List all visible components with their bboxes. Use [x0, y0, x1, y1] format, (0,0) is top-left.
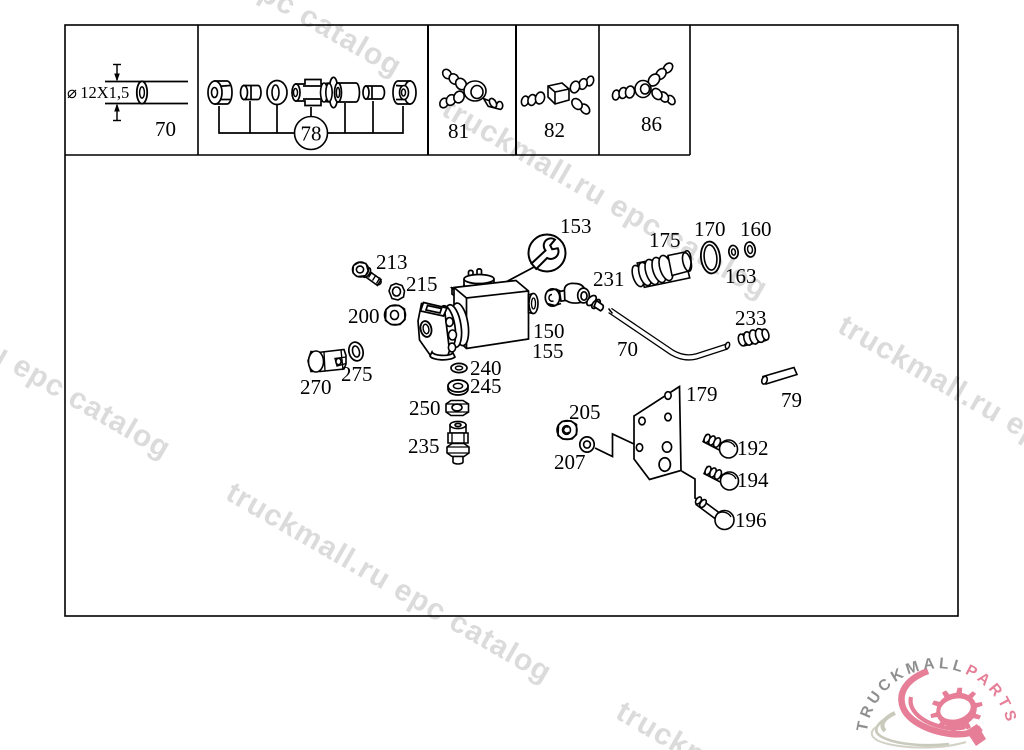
- svg-text:⌀ 12X1,5: ⌀ 12X1,5: [67, 83, 129, 102]
- svg-text:270: 270: [300, 375, 332, 399]
- svg-text:160: 160: [740, 217, 772, 241]
- svg-text:205: 205: [569, 400, 601, 424]
- svg-text:196: 196: [735, 508, 767, 532]
- svg-text:192: 192: [737, 436, 769, 460]
- svg-text:200: 200: [348, 304, 380, 328]
- svg-text:194: 194: [737, 468, 769, 492]
- svg-text:155: 155: [532, 339, 564, 363]
- svg-text:153: 153: [560, 214, 592, 238]
- svg-text:170: 170: [694, 217, 726, 241]
- svg-text:207: 207: [554, 450, 586, 474]
- svg-text:78: 78: [301, 122, 322, 146]
- svg-text:213: 213: [376, 250, 408, 274]
- svg-text:245: 245: [470, 374, 502, 398]
- svg-text:86: 86: [641, 112, 662, 136]
- svg-text:70: 70: [155, 117, 176, 141]
- svg-text:235: 235: [408, 434, 440, 458]
- svg-text:275: 275: [341, 362, 373, 386]
- svg-text:231: 231: [593, 267, 625, 291]
- svg-text:250: 250: [409, 396, 441, 420]
- svg-text:179: 179: [686, 382, 718, 406]
- svg-text:233: 233: [735, 306, 767, 330]
- svg-text:175: 175: [649, 228, 681, 252]
- svg-text:163: 163: [725, 264, 757, 288]
- svg-text:215: 215: [406, 272, 438, 296]
- svg-text:70: 70: [617, 337, 638, 361]
- svg-text:79: 79: [781, 388, 802, 412]
- svg-text:81: 81: [448, 119, 469, 143]
- svg-text:82: 82: [544, 118, 565, 142]
